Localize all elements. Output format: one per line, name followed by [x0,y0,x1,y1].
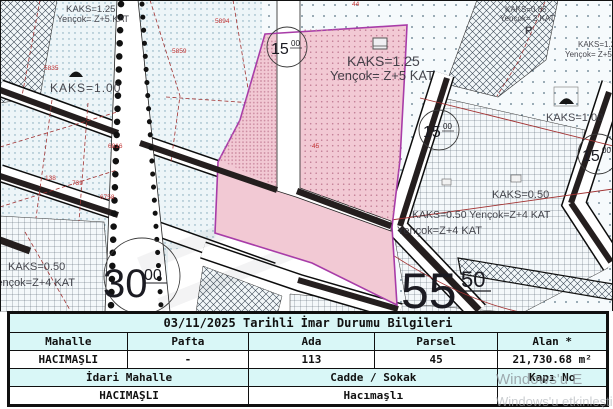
zone-label: Yençok=Z+4 KAT [397,225,482,237]
zoning-map-canvas[interactable]: KAKS=1.25 Yençok= Z+5 KAT KAKS=1.00 KAKS… [0,0,613,312]
zone-label: KAKS=1.25 [578,40,613,49]
zone-label: Yençok= Z+5 KAT [565,50,613,59]
zone-label: KAKS=1.00 [50,81,121,95]
col-header-mahalle: Mahalle [10,333,128,351]
col-header-alan: Alan * [498,333,607,351]
table-row: HACIMAŞLI - 113 45 21,730.68 m² [10,351,607,369]
table-header-row: Mahalle Pafta Ada Parsel Alan * [10,333,607,351]
parcel-number: 5859 [172,48,187,55]
cell-parsel: 45 [374,351,498,369]
cell-ada: 113 [249,351,375,369]
cell-mahalle: HACIMAŞLI [10,351,128,369]
road-width-sup: 50 [461,267,485,292]
imar-durumu-table: 03/11/2025 Tarihli İmar Durumu Bilgileri… [7,311,609,407]
building-icon [373,38,387,49]
parcel-number: 739 [72,180,83,187]
zone-label: KAKS=0.50 Yençok=Z+4 KAT [412,209,551,221]
road-width-sup: 00 [291,39,300,48]
utility-box-icon [511,175,521,182]
parcel-number: 6758 [100,194,115,201]
zone-label: Yençok= 2 KAT [500,14,555,23]
parcel-number: 138 [45,175,56,182]
windows-activation-watermark: Windows'u E [496,371,582,388]
col-header-cadde-sokak: Cadde / Sokak [249,369,498,387]
zone-label: KAKS=0.85 [505,5,547,14]
zone-label: Yençok= Z+5 KAT [57,14,130,24]
road-width-sup: 00 [443,122,452,131]
zone-label: Yençok=Z+4 KAT [0,277,75,289]
road-width-label: 30 [103,262,148,306]
utility-box-icon [442,179,451,185]
col-header-pafta: Pafta [127,333,249,351]
parcel-number: 5835 [44,65,59,72]
zone-label: Yençok= Z+5 KAT [330,68,434,83]
zone-label: P [525,25,532,37]
cell-idari-mahalle: HACIMAŞLI [10,387,249,405]
zone-label: KAKS=0.50 [8,261,65,273]
col-header-ada: Ada [249,333,375,351]
road-width-label: 15 [582,148,600,165]
zone-label: KAKS=1.25 [347,53,420,69]
col-header-parsel: Parsel [374,333,498,351]
cell-cadde-sokak: Hacımaşlı [249,387,498,405]
road-width-sup: 00 [602,146,611,155]
table-title: 03/11/2025 Tarihli İmar Durumu Bilgileri [10,314,607,333]
windows-activation-watermark-line2: Windows'u etkinleştirm [496,394,613,409]
road-width-sup: 00 [144,267,162,284]
parcel-number: 45 [312,143,320,150]
parcel-number: 44 [352,1,360,8]
parcel-number: 6816 [108,143,123,150]
parcel-number: 5894 [215,18,230,25]
road-width-label: 55 [401,263,457,312]
cell-alan: 21,730.68 m² [498,351,607,369]
cell-pafta: - [127,351,249,369]
zone-label: KAKS=1.00 [546,112,603,124]
road-width-label: 15 [271,41,289,58]
col-header-idari-mahalle: İdari Mahalle [10,369,249,387]
road-width-label: 15 [423,124,441,141]
zone-label: KAKS=0.50 [492,189,549,201]
